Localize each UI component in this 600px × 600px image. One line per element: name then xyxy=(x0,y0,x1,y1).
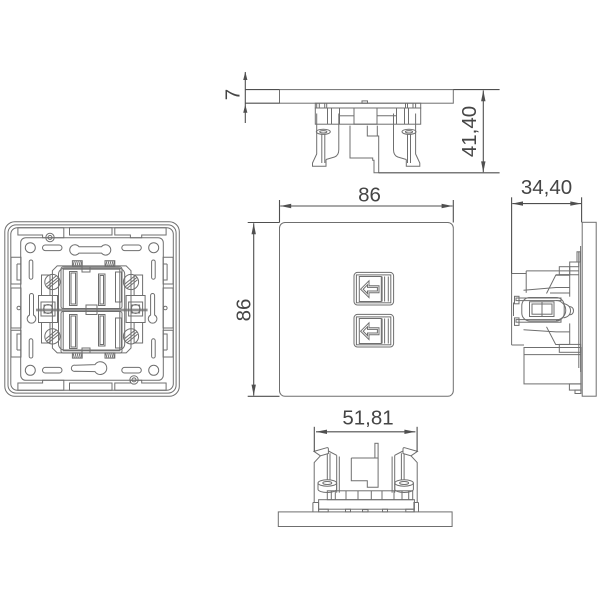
svg-text:7: 7 xyxy=(221,89,244,100)
svg-text:86: 86 xyxy=(233,299,256,322)
svg-text:34,40: 34,40 xyxy=(521,176,572,199)
svg-text:86: 86 xyxy=(358,184,381,207)
svg-text:51,81: 51,81 xyxy=(342,407,393,430)
svg-text:41,40: 41,40 xyxy=(458,106,481,157)
